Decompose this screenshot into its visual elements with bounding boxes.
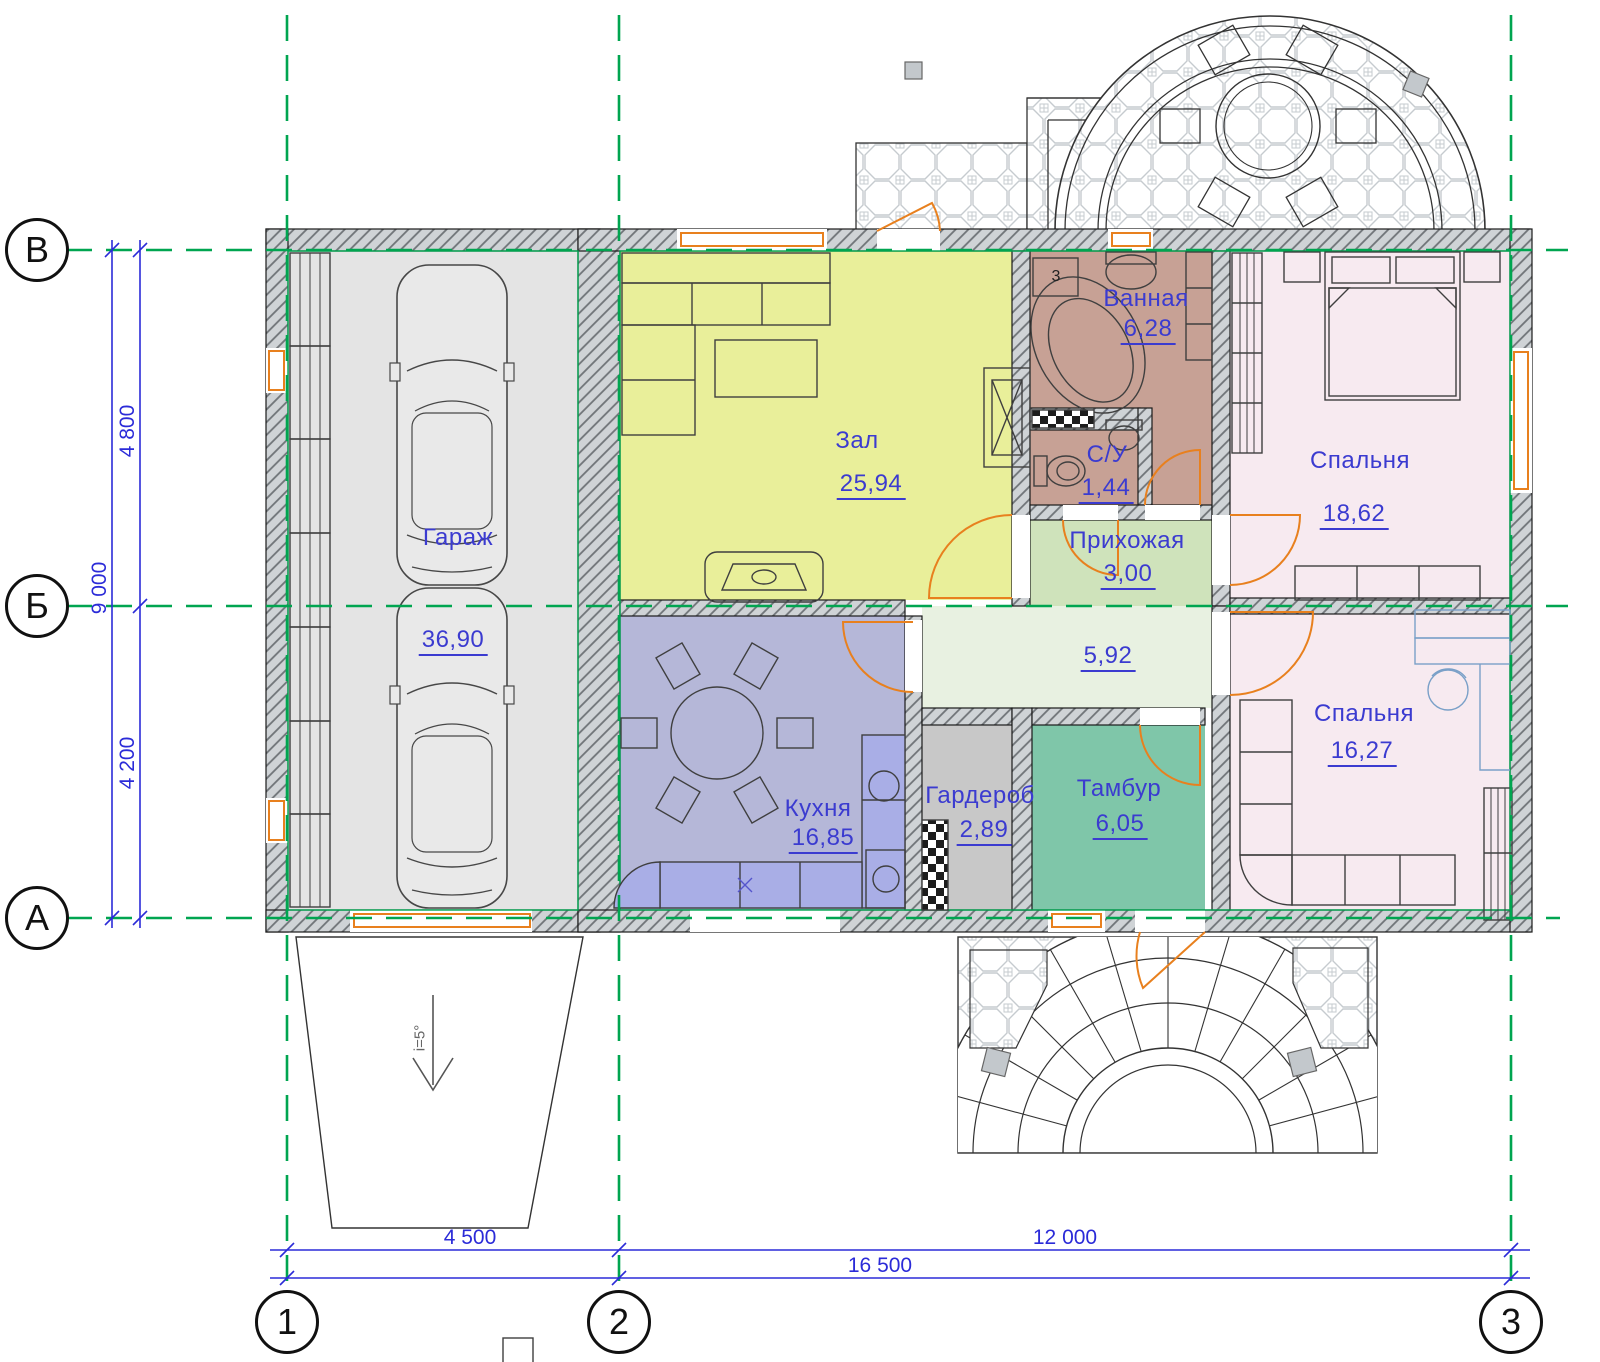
driveway	[296, 937, 583, 1228]
room-label-entry: Прихожая	[1069, 527, 1184, 555]
room-label-vestibule: Тамбур	[1077, 775, 1161, 803]
room-area-garage: 36,90	[419, 626, 488, 654]
axis-row-b: Б	[5, 574, 69, 638]
dim-total-width: 16 500	[848, 1254, 912, 1278]
room-label-wardrobe: Гардероб	[925, 782, 1035, 810]
room-hall	[620, 251, 1012, 600]
dim-span-top: 4 800	[116, 405, 140, 458]
axis-col-1: 1	[255, 1290, 319, 1354]
floor-plan-canvas	[0, 0, 1600, 1362]
axis-row-a: А	[5, 886, 69, 950]
dim-span-left: 4 500	[444, 1226, 497, 1250]
dim-total-height: 9 000	[88, 562, 112, 615]
terrace-bottom	[933, 918, 1403, 1153]
room-area-corridor: 5,92	[1081, 642, 1136, 670]
room-label-bedroom2: Спальня	[1314, 700, 1414, 728]
room-label-bathroom: Ванная	[1103, 285, 1188, 313]
axis-col-2: 2	[587, 1290, 651, 1354]
washing-machine-marker: 3	[1052, 268, 1061, 286]
room-corridor	[922, 606, 1212, 708]
axis-col-3: 3	[1479, 1290, 1543, 1354]
room-label-wc: С/У	[1087, 441, 1128, 469]
room-area-bathroom: 6,28	[1121, 315, 1176, 343]
room-area-wardrobe: 2,89	[957, 816, 1012, 844]
room-area-entry: 3,00	[1101, 560, 1156, 588]
dim-span-right: 12 000	[1033, 1226, 1097, 1250]
room-area-kitchen: 16,85	[789, 824, 858, 852]
terrace-top	[856, 16, 1485, 231]
room-area-bedroom1: 18,62	[1320, 500, 1389, 528]
room-area-bedroom2: 16,27	[1328, 737, 1397, 765]
room-area-hall: 25,94	[837, 470, 906, 498]
room-label-garage: Гараж	[423, 524, 493, 552]
dim-span-bottom: 4 200	[116, 737, 140, 790]
vent-shaft	[922, 820, 948, 910]
room-label-hall: Зал	[835, 427, 878, 455]
room-bedroom1	[1230, 251, 1510, 598]
room-area-wc: 1,44	[1079, 474, 1134, 502]
slope-label: i=5°	[412, 1025, 429, 1051]
room-label-bedroom1: Спальня	[1310, 447, 1410, 475]
room-label-kitchen: Кухня	[785, 795, 852, 823]
room-area-vestibule: 6,05	[1093, 810, 1148, 838]
axis-row-v: В	[5, 218, 69, 282]
vent-strip	[1032, 410, 1094, 428]
floor-plan: В Б А 1 2 3 9 000 4 800 4 200 4 500 12 0…	[0, 0, 1600, 1362]
